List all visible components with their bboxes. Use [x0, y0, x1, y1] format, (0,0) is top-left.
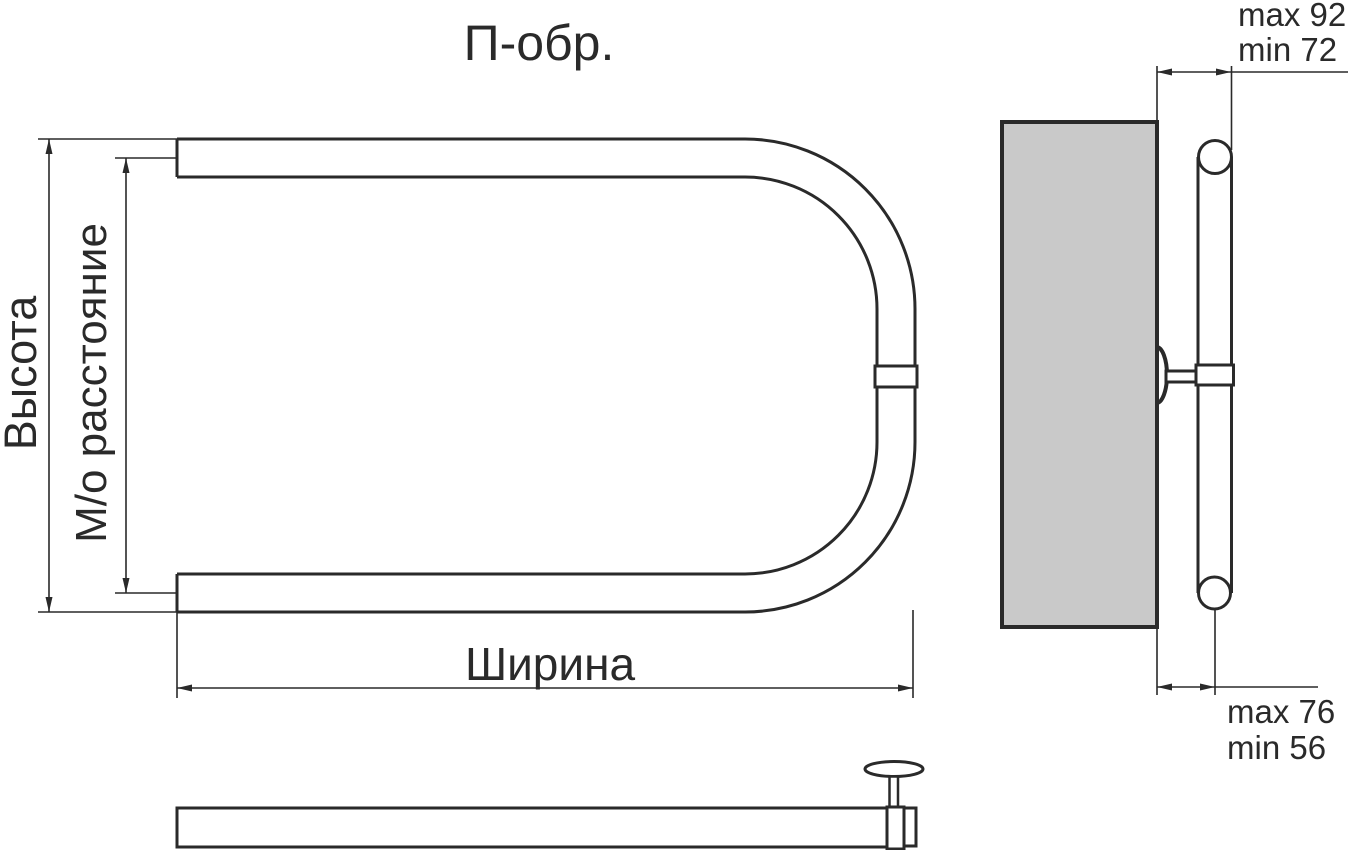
valve-handle: [865, 762, 923, 777]
front-view: [177, 139, 917, 612]
arrow-height-top: [46, 139, 53, 154]
bottom-tube-section: [1199, 577, 1231, 609]
pipe-collar: [1196, 365, 1234, 385]
front-view-dimensions: [38, 139, 913, 698]
drawing-page: П-обр. Высота М/о расстояние Ширина max …: [0, 0, 1349, 850]
arrow-depth-outer-left: [1157, 69, 1172, 76]
valve-body: [887, 807, 904, 849]
width-label: Ширина: [465, 638, 636, 690]
side-view: [1002, 122, 1234, 627]
technical-drawing: П-обр. Высота М/о расстояние Ширина max …: [0, 0, 1349, 850]
arrow-center-distance-top: [123, 158, 130, 173]
arrow-height-bottom: [46, 597, 53, 612]
depth-axis-min-label: min 56: [1227, 729, 1326, 766]
depth-axis-max-label: max 76: [1227, 693, 1335, 730]
valve-stem: [890, 777, 899, 808]
bottom-view: [177, 762, 923, 850]
arrow-depth-axis-left: [1157, 684, 1172, 691]
height-label: Высота: [0, 295, 46, 451]
center-distance-label: М/о расстояние: [67, 223, 116, 543]
arrow-width-left: [177, 685, 192, 692]
arrow-width-right: [898, 685, 913, 692]
union-fitting: [875, 366, 917, 387]
top-tube-section: [1199, 141, 1232, 174]
valve-rear-body: [904, 808, 916, 846]
page-title: П-обр.: [464, 15, 615, 71]
depth-outer-min-label: min 72: [1238, 31, 1337, 68]
towel-rail-outer-contour: [177, 139, 915, 612]
arrow-center-distance-bottom: [123, 578, 130, 593]
wall-section: [1002, 122, 1157, 627]
bottom-view-tube: [177, 808, 887, 847]
mounting-rod: [1166, 371, 1197, 382]
extension-lines: [38, 139, 913, 698]
towel-rail-inner-contour: [177, 177, 877, 574]
depth-outer-max-label: max 92: [1238, 0, 1346, 33]
arrow-depth-axis-right: [1200, 684, 1215, 691]
arrow-depth-outer-right: [1216, 69, 1231, 76]
